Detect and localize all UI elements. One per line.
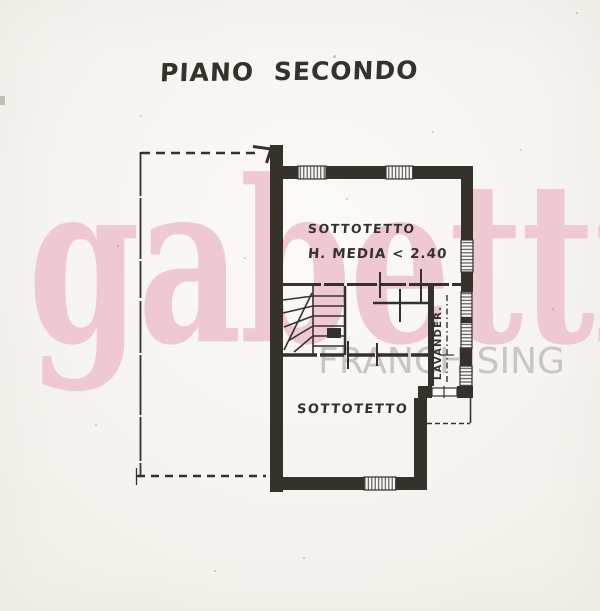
floor-plan-drawing	[0, 0, 600, 611]
room-label-sottotetto-lower: SOTTOTETTO	[296, 402, 408, 417]
room-note-mean-height: H. MEDIA < 2.40	[307, 246, 448, 262]
room-label-sottotetto-upper: SOTTOTETTO	[307, 221, 416, 236]
room-label-lavanderia: LAVANDER.	[433, 294, 447, 380]
balcony-outline	[427, 398, 471, 424]
terrace-outline	[137, 147, 272, 486]
staircase	[283, 286, 345, 355]
scanned-floor-plan-page: gabetti FRANCHISING PIANO SECONDO	[0, 0, 600, 611]
page-title: PIANO SECONDO	[159, 56, 419, 88]
